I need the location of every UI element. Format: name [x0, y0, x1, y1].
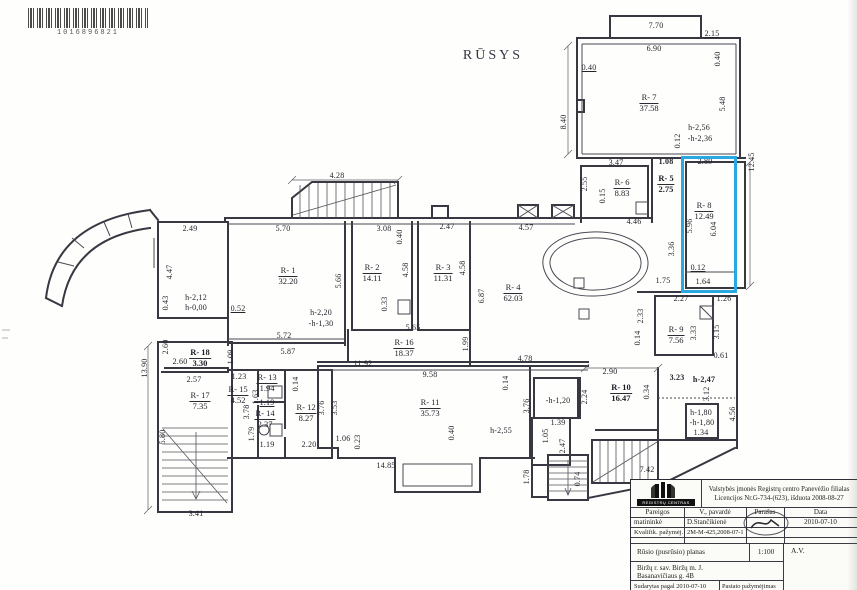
dimension-label: 6.90: [647, 45, 662, 53]
dimension-label: 1.75: [656, 277, 671, 285]
dimension-label: 2.90: [603, 368, 618, 376]
dimension-label: 4.46: [627, 218, 642, 226]
room-label-r-11: R- 1135.73: [420, 398, 441, 419]
dimension-label: -h-2,36: [688, 135, 713, 143]
dimension-label: 0.23: [354, 435, 362, 450]
dimension-label: 1.06: [336, 435, 351, 443]
dimension-label: 0.74: [574, 472, 582, 487]
dimension-label: 0.40: [448, 426, 456, 441]
dimension-label: 7.42: [640, 466, 655, 474]
dimension-label: 1.79: [248, 427, 256, 442]
org-line2: Licencijos Nr.G-734-(623), išduota 2008-…: [703, 495, 855, 502]
row2-pareigos: Kvalifik. pažymėj.: [634, 529, 683, 536]
dimension-label: 4.56: [729, 407, 737, 422]
dimension-label: 5.70: [276, 225, 291, 233]
dimension-label: 2.49: [183, 225, 198, 233]
dimension-label: 1.34: [694, 429, 709, 437]
dimension-label: 0.15: [599, 189, 607, 204]
dimension-label: h-2,12: [185, 294, 207, 302]
dimension-label: 3.15: [713, 325, 721, 340]
room-label-r-18: R- 183.30: [189, 348, 211, 369]
room-label-r-7: R- 737.58: [639, 93, 658, 114]
made-line1: Sudarytas pagal 2010-07-10: [634, 583, 706, 590]
title-block: REGISTRŲ CENTRAS Valstybės įmonės Regist…: [630, 479, 857, 590]
dimension-label: 5.80: [159, 430, 167, 445]
dimension-label: 2.27: [674, 295, 689, 303]
dimension-label: 4.58: [459, 261, 467, 276]
dimension-label: h-2,47: [693, 376, 715, 384]
dimension-label: 0.14: [502, 376, 510, 391]
room-label-r-16: R- 1618.37: [393, 338, 414, 359]
logo-caption: REGISTRŲ CENTRAS: [637, 499, 695, 506]
scale: 1:100: [749, 549, 783, 557]
dimension-label: 2.15: [705, 30, 720, 38]
dimension-label: 0.12: [674, 134, 682, 149]
dimension-label: 3.33: [690, 326, 698, 341]
dimension-label: h-2,20: [310, 309, 332, 317]
dimension-label: 3.53: [331, 401, 339, 416]
dimension-label: 2.47: [440, 223, 455, 231]
room-label-r-17: R- 177.35: [189, 391, 210, 412]
dimension-label: 4.58: [402, 263, 410, 278]
dimension-label: 1.39: [551, 419, 566, 427]
dimension-label: 5.87: [281, 348, 296, 356]
stamp-av: A.V.: [791, 547, 805, 555]
plan-type: Rūsio (pusrūsio) planas: [637, 549, 705, 557]
dimension-label: 1.19: [260, 441, 275, 449]
dimension-label: 7.70: [649, 22, 664, 30]
room-label-r-3: R- 311.31: [434, 263, 453, 284]
dimension-label: 3.08: [377, 225, 392, 233]
room-label-r-4: R- 462.03: [503, 283, 522, 304]
dimension-label: 2.24: [581, 390, 589, 405]
dimension-label: 1.99: [462, 337, 470, 352]
dimension-label: 5.66: [335, 274, 343, 289]
dimension-label: 4.78: [518, 355, 533, 363]
dimension-label: 0.61: [714, 352, 729, 360]
dimension-label: 8.40: [560, 115, 568, 130]
room-label-r-1: R- 132.20: [278, 266, 297, 287]
mark-line1: Pastato pažymėjimas: [722, 583, 776, 590]
dimension-label: 0.40: [396, 230, 404, 245]
room-label-r-9: R- 97.56: [668, 325, 685, 346]
row1-pavarde: D.Stančikienė: [687, 519, 726, 527]
dimension-label: 3.41: [189, 510, 204, 518]
dimension-label: 0.43: [162, 296, 170, 311]
dimension-label: 2.55: [581, 177, 589, 192]
dimension-label: 0.40: [582, 64, 597, 72]
signature: [741, 508, 791, 538]
dimension-label: h-1,80: [690, 409, 712, 417]
room-label-r-2: R- 214.11: [363, 263, 382, 284]
dimension-label: -h-1,20: [546, 397, 571, 405]
dimension-label: 5.72: [277, 332, 292, 340]
scan-edge-artifact: [847, 0, 857, 590]
dimension-label: 3.36: [668, 242, 676, 257]
room-label-r-5: R- 52.75: [657, 174, 674, 195]
dimension-label: 3.76: [523, 399, 531, 414]
dimension-label: 1.09: [227, 350, 235, 365]
dimension-label: 2.20: [302, 441, 317, 449]
dimension-label: h-0,00: [185, 304, 207, 312]
dimension-label: 3.76: [318, 401, 326, 416]
dimension-label: 2.47: [559, 439, 567, 454]
dimension-label: 0.52: [231, 305, 246, 313]
col-pareigos: Pareigos: [631, 509, 684, 517]
dimension-label: 1.05: [542, 429, 550, 444]
dimension-label: -h-1,30: [309, 320, 334, 328]
org-line1: Valstybės įmonės Registrų centro Panevėž…: [703, 486, 855, 493]
dimension-label: 3.78: [243, 405, 251, 420]
dimension-label: 1.78: [523, 470, 531, 485]
dimension-label: h-2,55: [490, 427, 512, 435]
room-label-r-12: R- 128.27: [295, 403, 316, 424]
dimension-label: 0.14: [634, 331, 642, 346]
dimension-label: h-2,56: [688, 124, 710, 132]
dimension-label: 11.92: [354, 360, 373, 368]
dimension-label: 12.45: [748, 153, 756, 172]
dimension-label: 5.48: [719, 97, 727, 112]
dimension-label: 3.23: [670, 374, 685, 382]
col-pavarde: V., pavardė: [684, 509, 746, 517]
dimension-label: 4.28: [330, 172, 345, 180]
room-r8-highlight: [681, 156, 737, 293]
dimension-label: 4.57: [519, 224, 534, 232]
room-label-r-14: R- 142.37: [254, 409, 275, 430]
dimension-label: 1.08: [659, 158, 674, 166]
row1-pareigos: matininkė: [634, 519, 662, 527]
dimension-label: 2.57: [187, 376, 202, 384]
room-label-r-15: R- 154.52: [227, 385, 248, 406]
dimension-label: 2.60: [162, 340, 170, 355]
walls-thin: [58, 44, 737, 486]
dimension-label: 9.58: [423, 371, 438, 379]
dimension-label: 1.23: [232, 373, 247, 381]
dimension-label: 2.33: [637, 309, 645, 324]
room-label-r-10: R- 1016.47: [610, 383, 632, 404]
walls-thick: [46, 16, 745, 512]
dimension-label: 3.47: [609, 159, 624, 167]
dimension-label: 1.19: [260, 399, 275, 407]
dimension-label: 0.34: [643, 385, 651, 400]
row2-pavarde: 2M-M-425,2008-07-1: [687, 529, 744, 536]
dimension-label: 5.65: [406, 324, 421, 332]
dimension-label: 13.90: [141, 359, 149, 378]
dimension-label: 1.26: [717, 295, 732, 303]
registru-centras-logo: REGISTRŲ CENTRAS: [637, 482, 695, 506]
dimension-label: 0.40: [714, 52, 722, 67]
dimension-label: 0.33: [381, 297, 389, 312]
dimension-label: 6.87: [478, 289, 486, 304]
dimension-label: 3.12: [703, 387, 711, 402]
address-line2: Basanavičiaus g. 4B: [637, 573, 694, 581]
room-label-r-6: R- 68.83: [614, 178, 631, 199]
dimension-label: 14.85: [377, 462, 396, 470]
dimension-label: 4.47: [166, 265, 174, 280]
dimension-label: 0.14: [292, 377, 300, 392]
scanned-floorplan-page: 1016896821 RŪSYS: [0, 0, 857, 590]
dimension-label: 2.60: [173, 358, 188, 366]
dimension-label: -h-1,80: [690, 419, 715, 427]
